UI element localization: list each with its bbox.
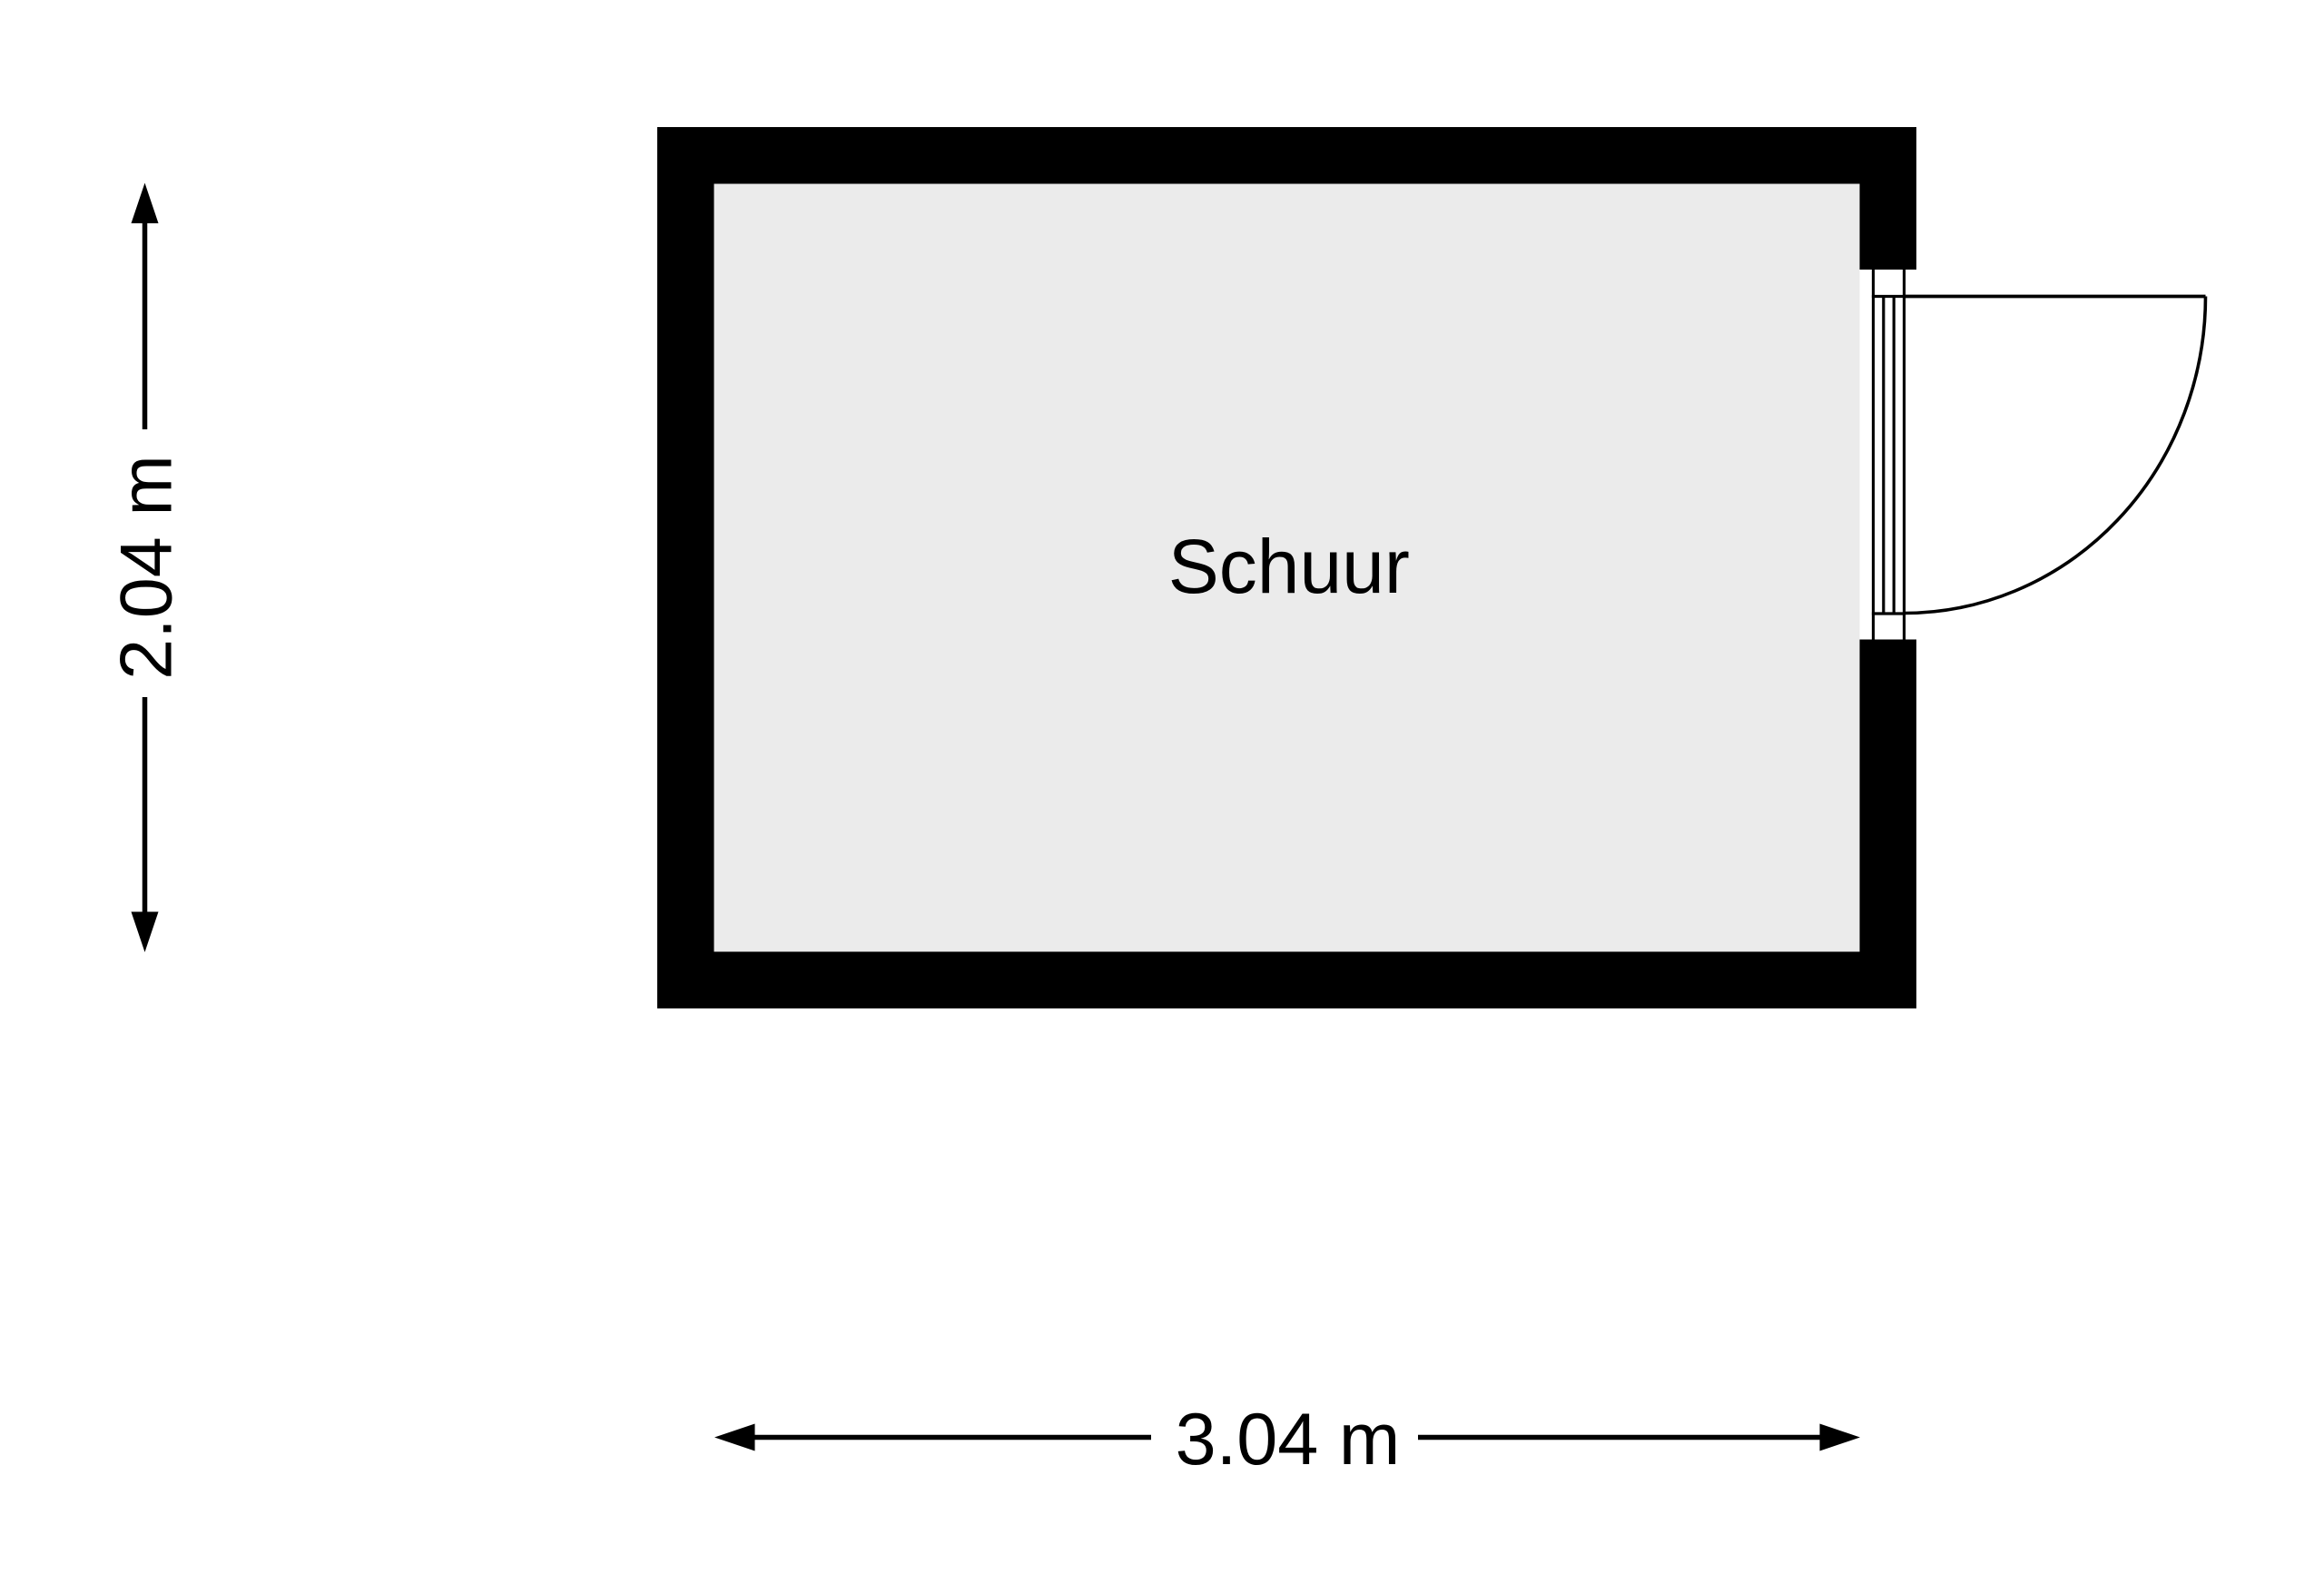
svg-text:2.04 m: 2.04 m — [106, 455, 188, 680]
svg-text:Schuur: Schuur — [1168, 524, 1410, 609]
svg-text:3.04 m: 3.04 m — [1176, 1399, 1401, 1480]
